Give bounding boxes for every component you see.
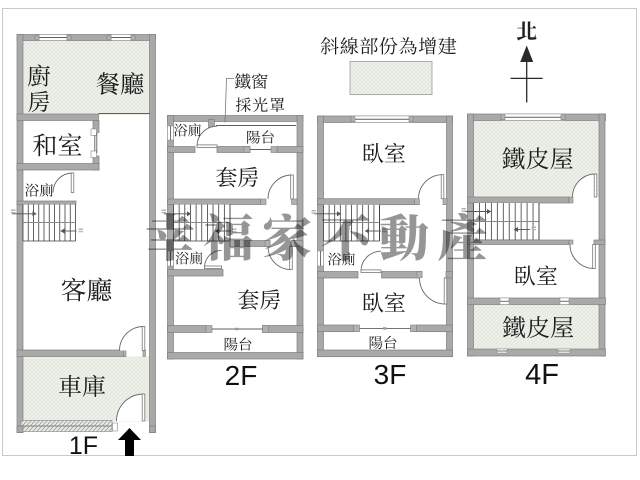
svg-text:4F: 4F bbox=[525, 359, 559, 391]
svg-text:1F: 1F bbox=[69, 432, 98, 460]
svg-text:2F: 2F bbox=[225, 360, 258, 391]
svg-text:3F: 3F bbox=[374, 359, 407, 390]
